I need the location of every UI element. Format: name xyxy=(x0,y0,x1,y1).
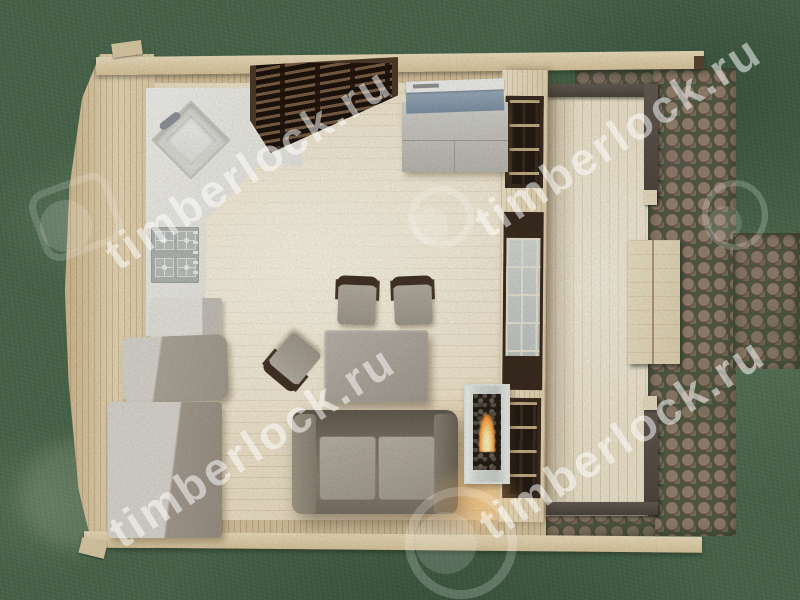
glass-door-window xyxy=(502,212,544,390)
terrace-railing-post-upper xyxy=(644,190,657,205)
cabinet-seam xyxy=(402,140,508,141)
cabinet-divider xyxy=(454,140,455,172)
hob-burner-1 xyxy=(155,231,174,250)
bio-fireplace xyxy=(464,384,510,484)
hob-burner-3 xyxy=(155,258,174,277)
dining-table xyxy=(324,330,428,402)
hob-knobs xyxy=(193,231,198,279)
floor-plan-render: timberlock.ru timberlock.ru timberlock.r… xyxy=(0,0,800,600)
terrace-railing-east-lower xyxy=(644,396,658,514)
chair-seat xyxy=(337,284,376,325)
cobblestone-path-east-extension xyxy=(733,233,800,369)
terrace-railing-south xyxy=(546,502,658,515)
sofa-arm-left xyxy=(292,414,316,514)
appliance-box-rounded xyxy=(121,334,229,404)
terrace-railing-north xyxy=(546,84,658,97)
dining-chair-1 xyxy=(333,275,381,329)
dining-chair-2 xyxy=(389,275,437,329)
fireplace-flame xyxy=(479,414,495,452)
glass-door-panes xyxy=(505,238,540,356)
sofa-cushion-left xyxy=(319,436,376,500)
top-beam-end-cap xyxy=(694,56,704,69)
refrigerator-cabinet xyxy=(108,402,222,538)
window-upper xyxy=(505,96,544,188)
plank-walkway xyxy=(628,240,680,364)
appliance-box-small xyxy=(150,298,222,338)
chair-seat xyxy=(393,284,432,325)
terrace-railing-east-upper xyxy=(644,84,658,204)
terrace-railing-post-lower xyxy=(644,396,657,410)
